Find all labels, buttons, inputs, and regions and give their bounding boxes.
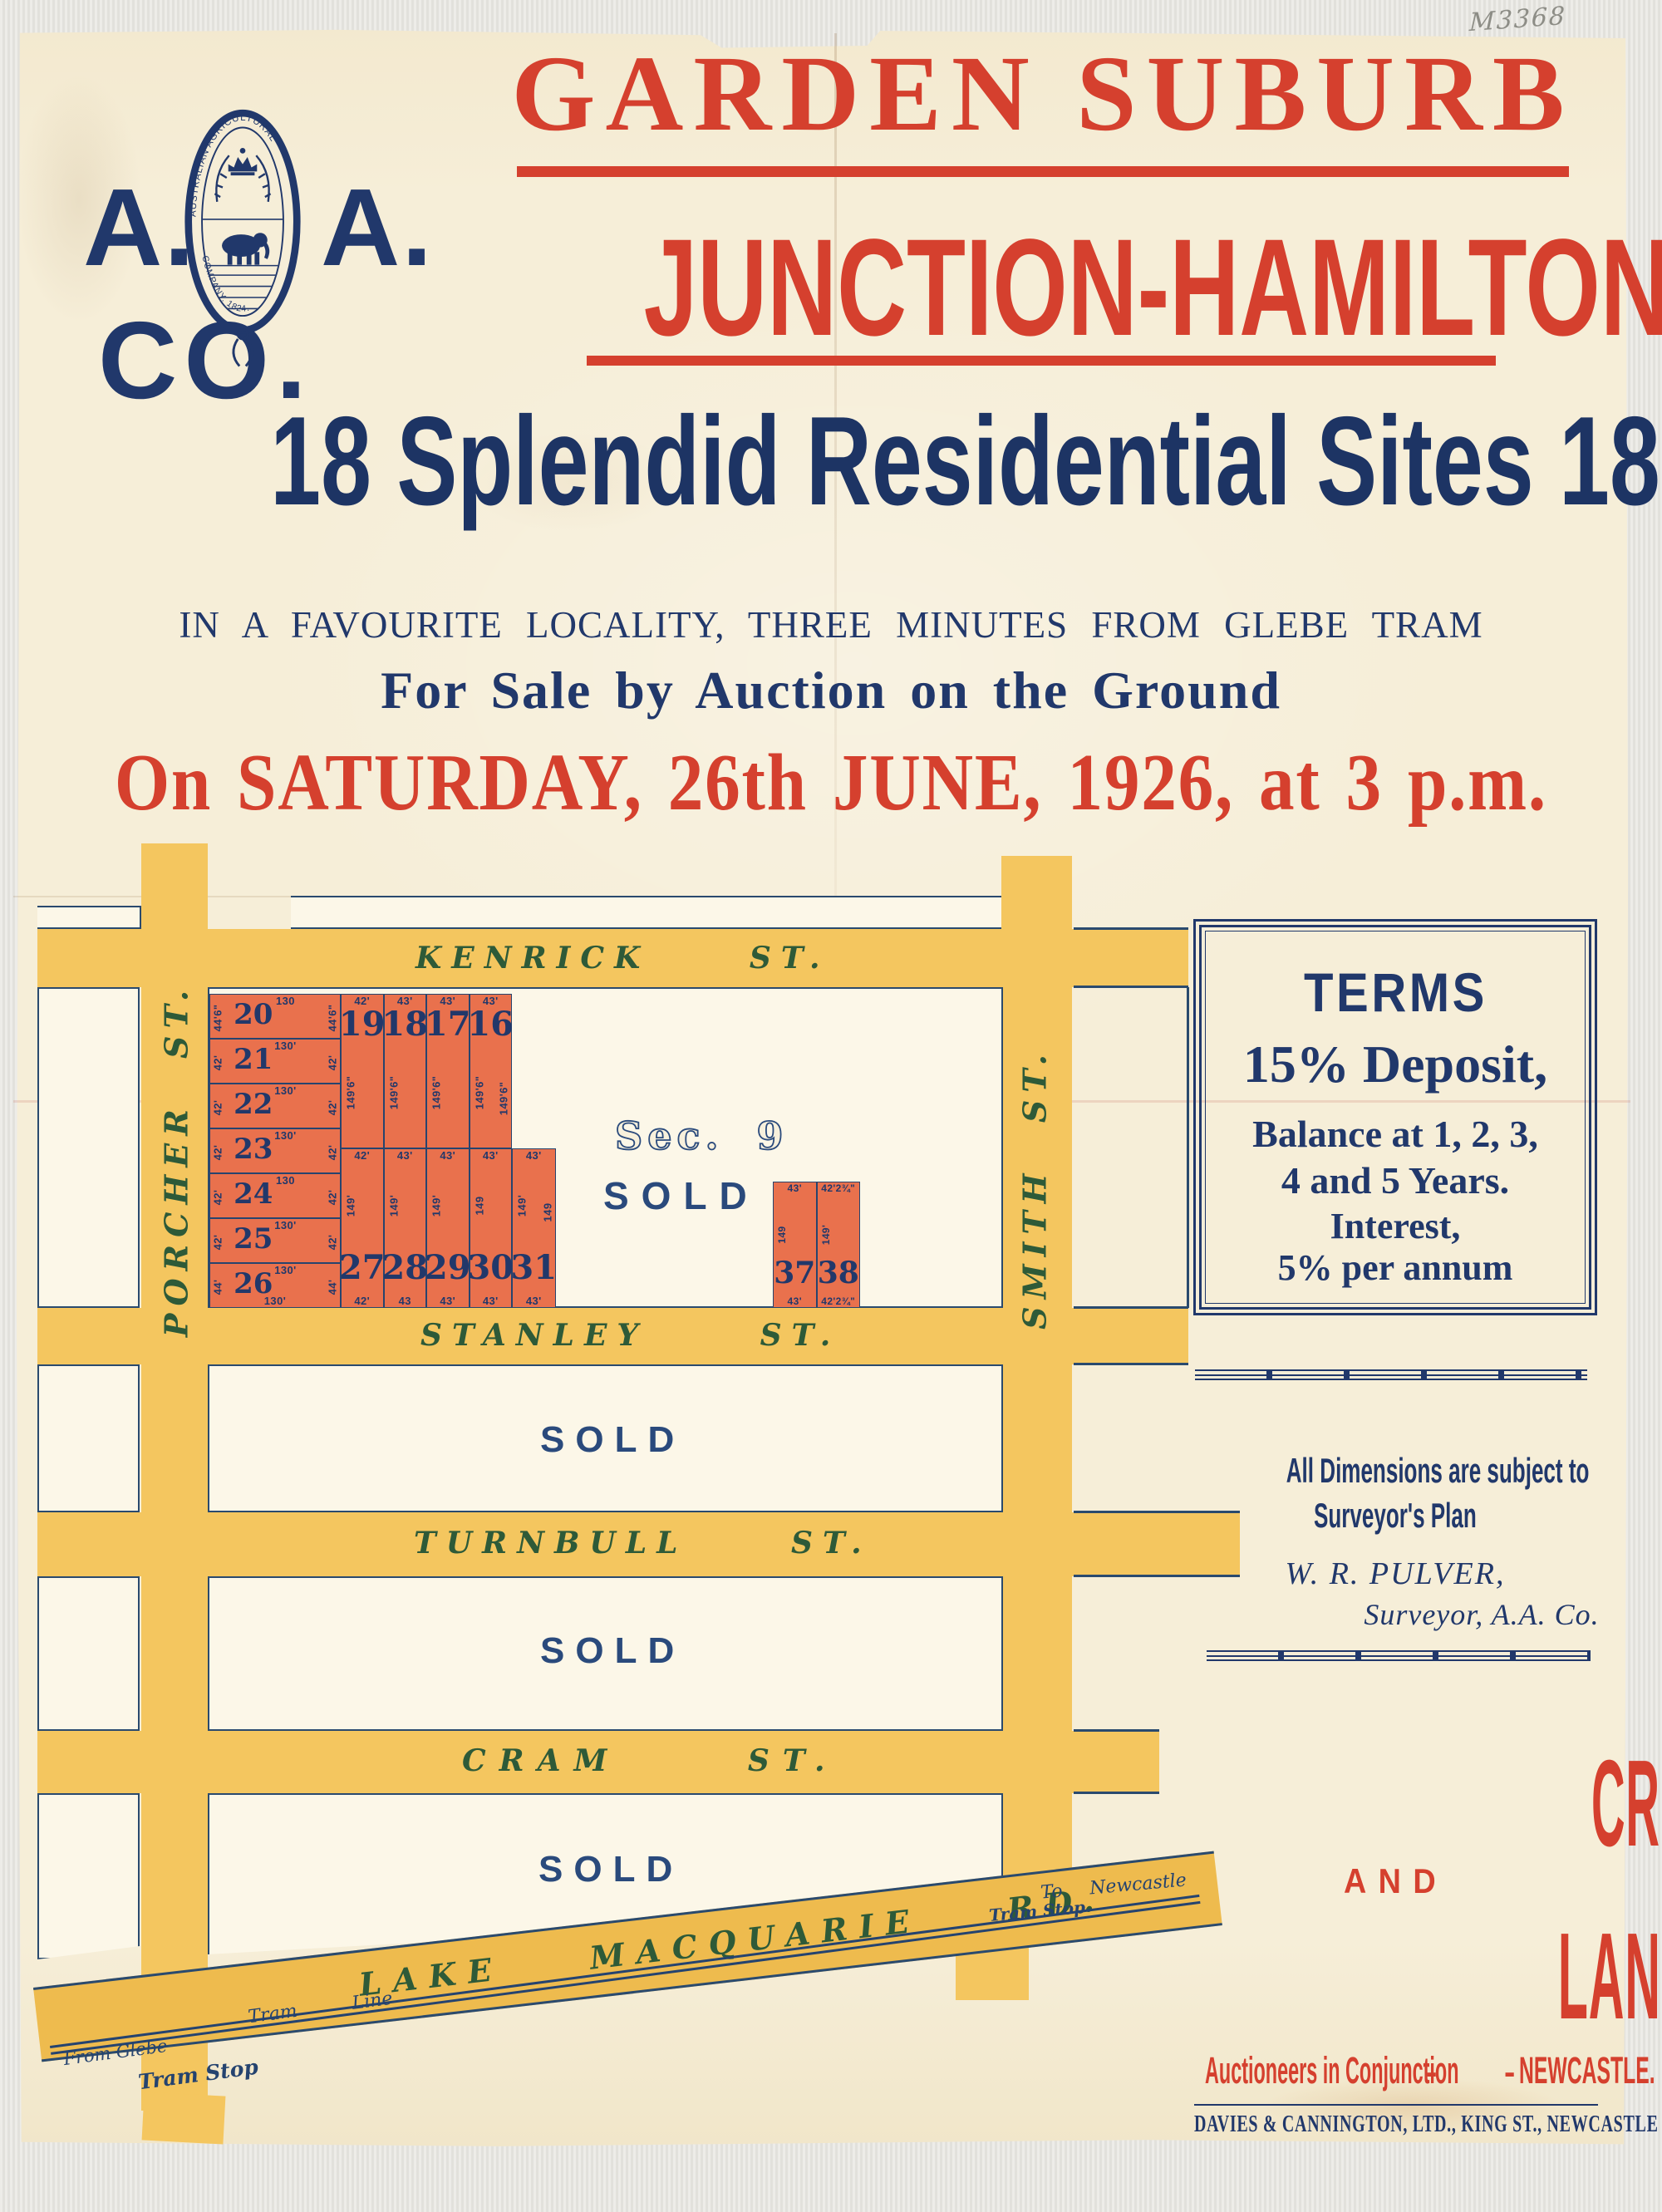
lot-16-dim-im: 149'6"	[498, 1082, 510, 1116]
lot-20: 13044'6"44'6"20	[209, 994, 341, 1039]
title-underline	[517, 166, 1569, 177]
auctioneers-dashes: - -	[1426, 2054, 1517, 2092]
sale-line: For Sale by Auction on the Ground	[0, 660, 1662, 721]
lot-21-dim-im: 42'	[212, 1055, 224, 1071]
auctioneer-firm-1-text: CREER & BERKELEY	[1591, 1733, 1662, 1875]
printer-line: DAVIES & CANNINGTON, LTD., KING ST., NEW…	[1194, 2111, 1598, 2138]
auction-date-line: On SATURDAY, 26th JUNE, 1926, at 3 p.m.	[0, 736, 1662, 829]
lot-28-dim-im: 149'	[387, 1195, 400, 1217]
lot-27-dim-im: 149'	[345, 1195, 357, 1217]
printer-line-text: DAVIES & CANNINGTON, LTD., KING ST., NEW…	[1194, 2111, 1659, 2138]
terms-balance-1: Balance at 1, 2, 3,	[1193, 1112, 1597, 1156]
map-line	[1074, 1792, 1159, 1794]
seal-crown-icon	[229, 148, 258, 175]
auctioneer-firm-2-text: LANG, WOOD & CO.	[1558, 1906, 1662, 2047]
lot-29-num: 29	[425, 1248, 471, 1287]
lot-23-dim-im: 130'	[274, 1129, 296, 1142]
street-label-cram: CRAM ST.	[462, 1743, 838, 1778]
lot-26: 130'130'44'44'26	[209, 1263, 341, 1308]
lot-24-dim-im: 42'	[212, 1190, 224, 1206]
lot-28-dim-im: 43	[399, 1295, 411, 1307]
lot-23-dim-im: 42'	[327, 1145, 339, 1161]
map-line	[1074, 986, 1188, 988]
street-porcher-south-patch	[142, 2092, 226, 2144]
lot-16: 43'149'6"149'6"16	[470, 994, 513, 1148]
lot-25-num: 25	[234, 1222, 273, 1256]
seal-tassel-icon	[234, 329, 252, 366]
lot-21-dim-im: 42'	[327, 1055, 339, 1071]
lot-24-num: 24	[234, 1177, 273, 1211]
lot-31: 43'43'149'14931	[512, 1148, 556, 1308]
lot-28: 43'43149'28	[384, 1148, 427, 1308]
lot-38-num: 38	[818, 1256, 859, 1290]
block-north-west	[37, 906, 141, 929]
logo-letter-a-right: A.	[321, 165, 434, 290]
lot-37-dim-im: 43'	[788, 1182, 802, 1194]
auctioneer-conjunction: AND	[1193, 1861, 1597, 1901]
dimensions-note-1: All Dimensions are subject to	[1193, 1451, 1597, 1491]
sold-label-block2: SOLD	[540, 1419, 685, 1461]
lot-26-num: 26	[234, 1267, 273, 1300]
block-west-1	[37, 987, 140, 1308]
block-west-2	[37, 1364, 140, 1512]
logo-letter-a-left: A.	[83, 165, 196, 290]
dimensions-note-2: Surveyor's Plan	[1193, 1496, 1597, 1536]
lot-24-dim-im: 130	[276, 1174, 295, 1187]
sites-headline: 18 Splendid Residential Sites 18	[0, 389, 1662, 534]
seal-elephant-icon	[222, 233, 269, 264]
lot-24-dim-im: 42'	[327, 1190, 339, 1206]
svg-text:AUSTRALIAN AGRICULTURAL: AUSTRALIAN AGRICULTURAL	[188, 113, 278, 217]
street-label-kenrick: KENRICK ST.	[415, 941, 830, 976]
terms-heading-text: TERMS	[1304, 961, 1487, 1024]
lot-30-num: 30	[467, 1248, 514, 1287]
lot-31-dim-im: 149'	[516, 1195, 529, 1217]
sites-headline-text: 18 Splendid Residential Sites 18	[270, 389, 1660, 534]
sold-label-block3: SOLD	[540, 1630, 685, 1672]
lot-21: 130'42'42'21	[209, 1039, 341, 1084]
lot-25: 130'42'42'25	[209, 1218, 341, 1263]
aaco-seal-icon: AUSTRALIAN AGRICULTURAL COMPANY. 1824.	[183, 98, 302, 377]
lot-31-dim-im: 43'	[526, 1295, 542, 1307]
auctioneer-firm-2: LANG, WOOD & CO.	[1193, 1906, 1597, 2047]
lot-27-dim-im: 42'	[354, 1149, 370, 1162]
lot-28-dim-im: 43'	[397, 1149, 413, 1162]
lot-23-dim-im: 42'	[212, 1145, 224, 1161]
lot-30-dim-im: 43'	[483, 1149, 499, 1162]
auction-date-text: On SATURDAY, 26th JUNE, 1926, at 3 p.m.	[115, 736, 1547, 829]
lot-37-num: 37	[774, 1256, 815, 1290]
terms-balance-2: 4 and 5 Years.	[1193, 1158, 1597, 1202]
terms-deposit: 15% Deposit,	[1193, 1034, 1597, 1095]
block-west-4	[37, 1793, 140, 1959]
ornamental-rule-top	[1195, 1369, 1587, 1380]
lot-24: 13042'42'24	[209, 1173, 341, 1218]
seal-ground	[199, 219, 287, 309]
lot-16-num: 16	[467, 1005, 514, 1044]
lot-30: 43'43'14930	[470, 1148, 513, 1308]
poster-subtitle-text: JUNCTION-HAMILTON	[644, 209, 1662, 367]
street-smith	[1001, 856, 1072, 1882]
auctioneers-line-text: Auctioneers in Conjunction	[1205, 2049, 1459, 2092]
map-line	[1074, 1729, 1159, 1732]
lot-37-dim-im: 43'	[788, 1295, 802, 1307]
scanned-poster-page: M3368 A. A. CO. AUSTRALIAN AGRICULTURAL …	[0, 0, 1662, 2212]
street-label-turnbull: TURNBULL ST.	[414, 1526, 872, 1561]
lot-25-dim-im: 42'	[212, 1235, 224, 1251]
lot-30-dim-im: 149	[473, 1197, 485, 1216]
terms-interest-2: 5% per annum	[1193, 1246, 1597, 1289]
auctioneer-firm-1: CREER & BERKELEY	[1193, 1733, 1597, 1875]
lot-31-num: 31	[510, 1248, 557, 1287]
lot-22: 130'42'42'22	[209, 1084, 341, 1128]
dimensions-note-1-text: All Dimensions are subject to	[1286, 1451, 1590, 1491]
lot-37: 43'43'14937	[773, 1182, 817, 1308]
lot-20-dim-im: 130	[276, 995, 295, 1007]
street-label-smith: SMITH ST.	[1016, 1047, 1054, 1330]
poster-title: GARDEN SUBURB	[424, 32, 1662, 156]
lot-17-dim-im: 149'6"	[430, 1075, 443, 1109]
lot-37-dim-im: 149	[776, 1226, 788, 1243]
lot-29-dim-im: 43'	[440, 1149, 455, 1162]
lot-17-num: 17	[425, 1005, 471, 1044]
lot-26-dim-im: 130'	[274, 1264, 296, 1276]
lot-27-dim-im: 42'	[354, 1295, 370, 1307]
lot-31-dim-im: 43'	[526, 1149, 542, 1162]
lot-26-dim-im: 44'	[212, 1280, 224, 1295]
surveyor-title: Surveyor, A.A. Co.	[1280, 1597, 1662, 1632]
lot-22-dim-im: 42'	[212, 1100, 224, 1116]
auctioneer-conjunction-text: AND	[1343, 1861, 1447, 1901]
lot-18: 43'149'6"18	[384, 994, 427, 1148]
terms-interest-1: Interest,	[1193, 1205, 1597, 1247]
lot-27: 42'42'149'27	[341, 1148, 384, 1308]
street-label-porcher: PORCHER ST.	[158, 983, 195, 1337]
lot-16-dim-im: 149'6"	[473, 1075, 485, 1109]
lot-22-dim-im: 42'	[327, 1100, 339, 1116]
lot-17: 43'149'6"17	[426, 994, 470, 1148]
lot-29-dim-im: 149'	[430, 1195, 443, 1217]
map-line	[1074, 1363, 1188, 1365]
lot-20-dim-im: 44'6"	[212, 1005, 224, 1032]
lot-30-dim-im: 43'	[483, 1295, 499, 1307]
lot-38-dim-im: 42'2¾"	[821, 1295, 855, 1307]
lot-38-dim-im: 42'2¾"	[821, 1182, 855, 1194]
map-line	[1074, 1306, 1188, 1309]
block-north-of-kenrick	[291, 896, 1001, 929]
lot-22-num: 22	[234, 1088, 273, 1121]
lot-25-dim-im: 130'	[274, 1219, 296, 1231]
sold-label-section9: SOLD	[603, 1173, 760, 1218]
dimensions-note-2-text: Surveyor's Plan	[1314, 1496, 1477, 1536]
auctioneers-city: NEWCASTLE.	[1519, 2049, 1662, 2092]
lot-38: 42'2¾"42'2¾"149'38	[817, 1182, 861, 1308]
lot-31-dim-im: 149	[541, 1203, 553, 1222]
lot-38-dim-im: 149'	[820, 1225, 832, 1245]
block-west-3	[37, 1576, 140, 1731]
terms-heading: TERMS	[1193, 961, 1597, 1024]
subtitle-underline	[587, 356, 1496, 366]
map-line	[1074, 927, 1188, 930]
map-boundary-line	[1187, 987, 1189, 1308]
lot-18-dim-im: 149'6"	[387, 1075, 400, 1109]
lot-29: 43'43'149'29	[426, 1148, 470, 1308]
seal-text-top: AUSTRALIAN AGRICULTURAL	[188, 113, 278, 217]
sold-label-block4: SOLD	[538, 1849, 683, 1890]
lot-23-num: 23	[234, 1133, 273, 1166]
street-label-stanley: STANLEY ST.	[420, 1318, 840, 1353]
lot-28-num: 28	[381, 1248, 428, 1287]
lot-26-dim-im: 44'	[327, 1280, 339, 1295]
seal-laurel-icon	[214, 155, 270, 202]
surveyor-name: W. R. PULVER,	[1193, 1556, 1597, 1592]
lot-22-dim-im: 130'	[274, 1084, 296, 1097]
lot-19-dim-im: 149'6"	[345, 1075, 357, 1109]
lot-21-dim-im: 130'	[274, 1040, 296, 1052]
lot-27-num: 27	[339, 1248, 386, 1287]
lot-23: 130'42'42'23	[209, 1128, 341, 1173]
lot-19-num: 19	[339, 1005, 386, 1044]
printer-rule	[1194, 2104, 1598, 2106]
lot-21-num: 21	[234, 1043, 273, 1076]
auctioneers-city-text: NEWCASTLE.	[1519, 2049, 1655, 2092]
lot-20-num: 20	[234, 998, 273, 1031]
lot-25-dim-im: 42'	[327, 1235, 339, 1251]
lot-18-num: 18	[381, 1005, 428, 1044]
lot-29-dim-im: 43'	[440, 1295, 455, 1307]
lot-19: 42'149'6"19	[341, 994, 384, 1148]
section-label: Sec. 9	[615, 1113, 789, 1158]
ornamental-rule-bottom	[1207, 1650, 1591, 1661]
lot-20-dim-im: 44'6"	[327, 1005, 339, 1032]
locality-line: IN A FAVOURITE LOCALITY, THREE MINUTES F…	[0, 603, 1662, 646]
poster-subtitle: JUNCTION-HAMILTON	[424, 209, 1662, 367]
